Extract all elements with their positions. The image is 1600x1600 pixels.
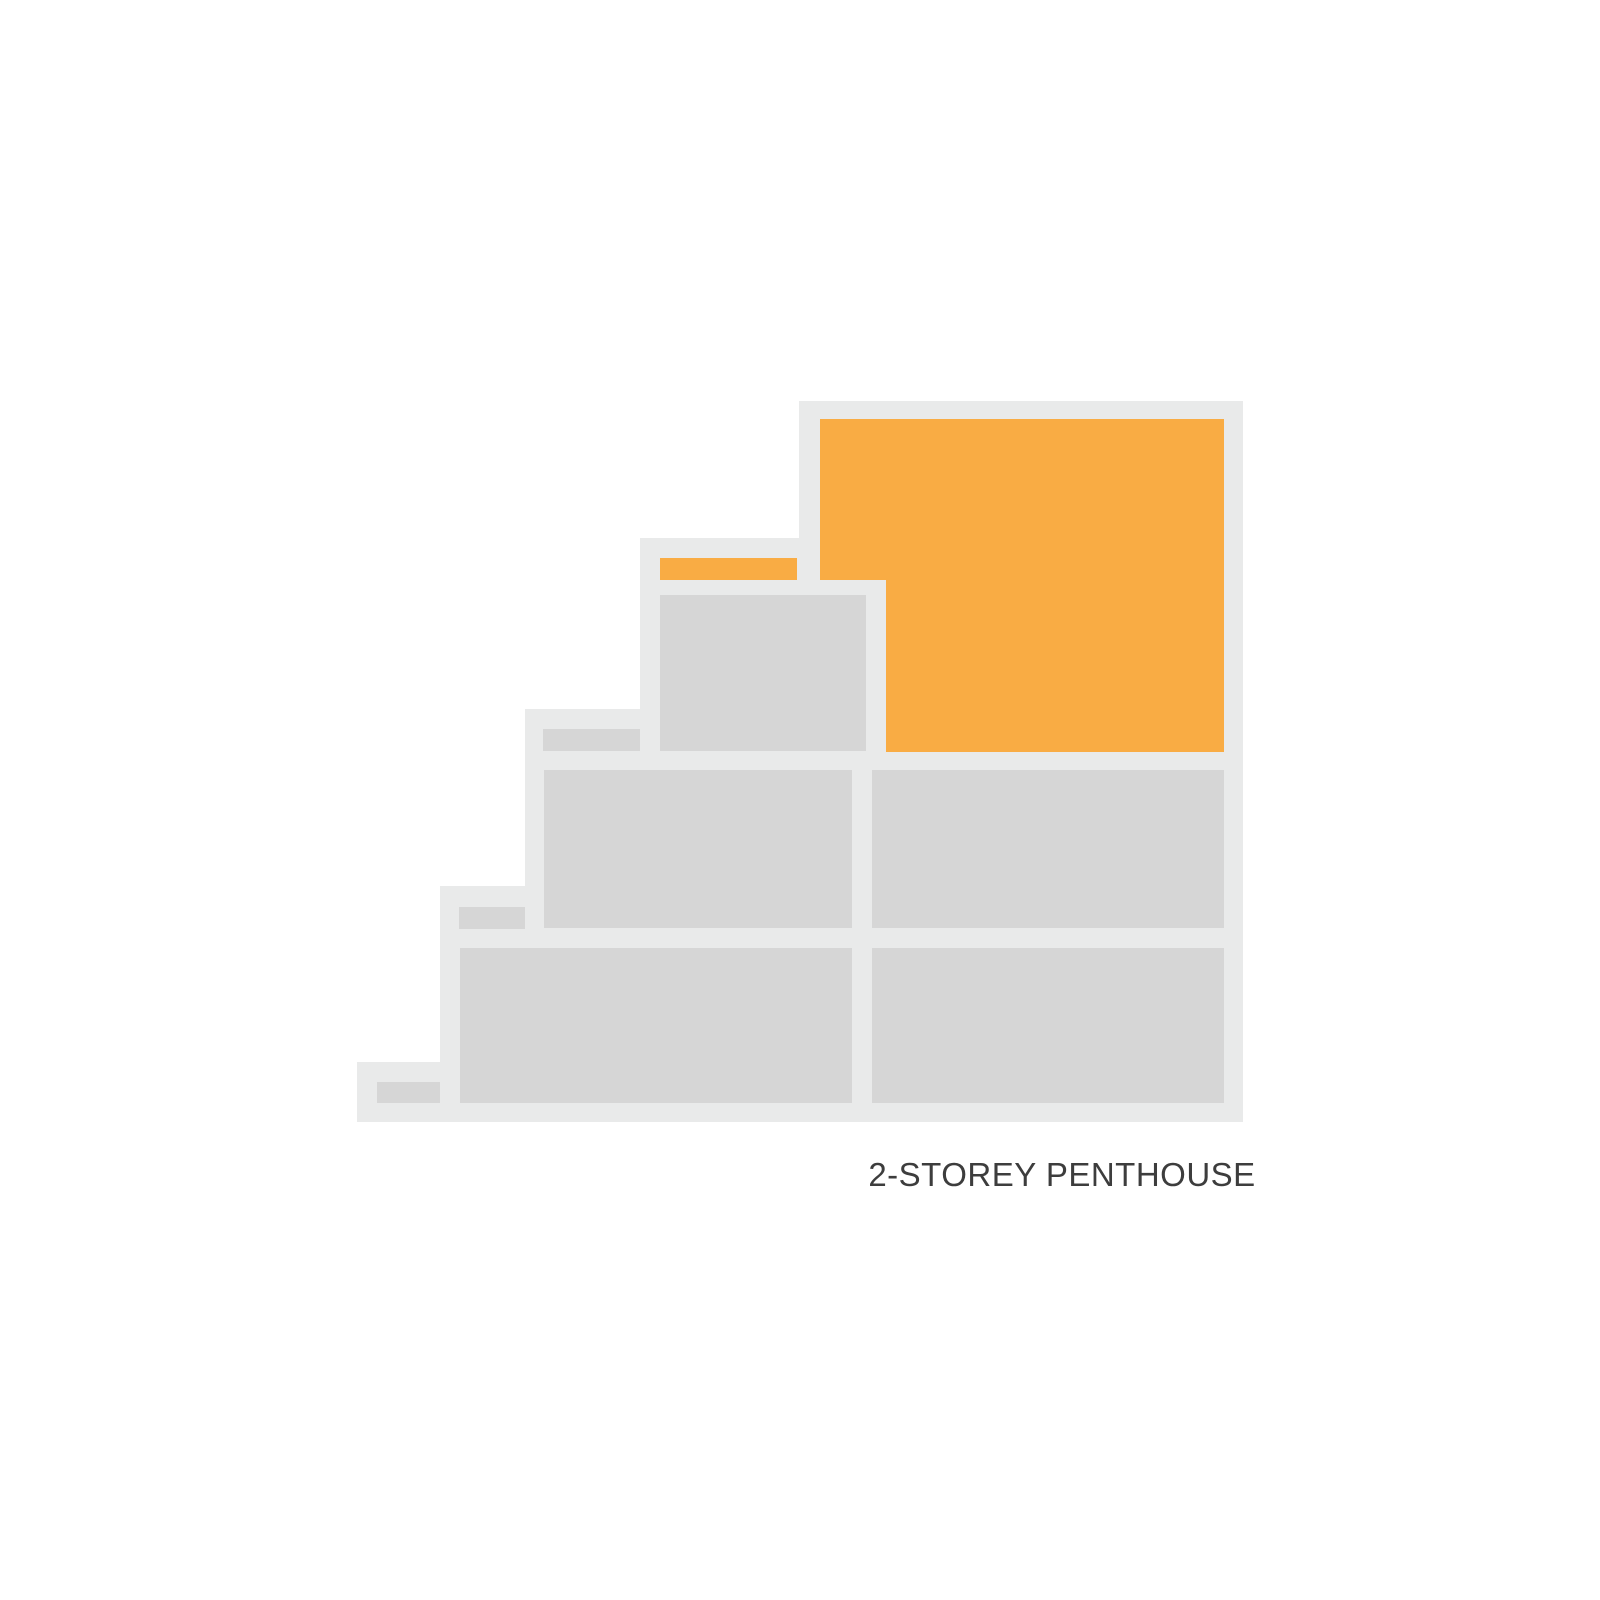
penthouse-terrace-marker[interactable] <box>660 558 797 580</box>
unit-block-level2-left <box>544 770 852 928</box>
unit-block-level2-right <box>872 770 1224 928</box>
diagram-label: 2-STOREY PENTHOUSE <box>868 1156 1255 1194</box>
unit-block-level1-right <box>872 948 1224 1103</box>
terrace-marker-level2 <box>459 907 525 929</box>
terrace-marker-level3 <box>543 729 640 751</box>
penthouse-upper-storey[interactable] <box>820 419 1224 580</box>
unit-block-level3 <box>660 595 866 751</box>
penthouse-lower-storey[interactable] <box>886 580 1224 752</box>
canvas: 2-STOREY PENTHOUSE <box>0 0 1600 1600</box>
unit-block-level1-left <box>460 948 852 1103</box>
terrace-marker-level1 <box>377 1082 440 1103</box>
